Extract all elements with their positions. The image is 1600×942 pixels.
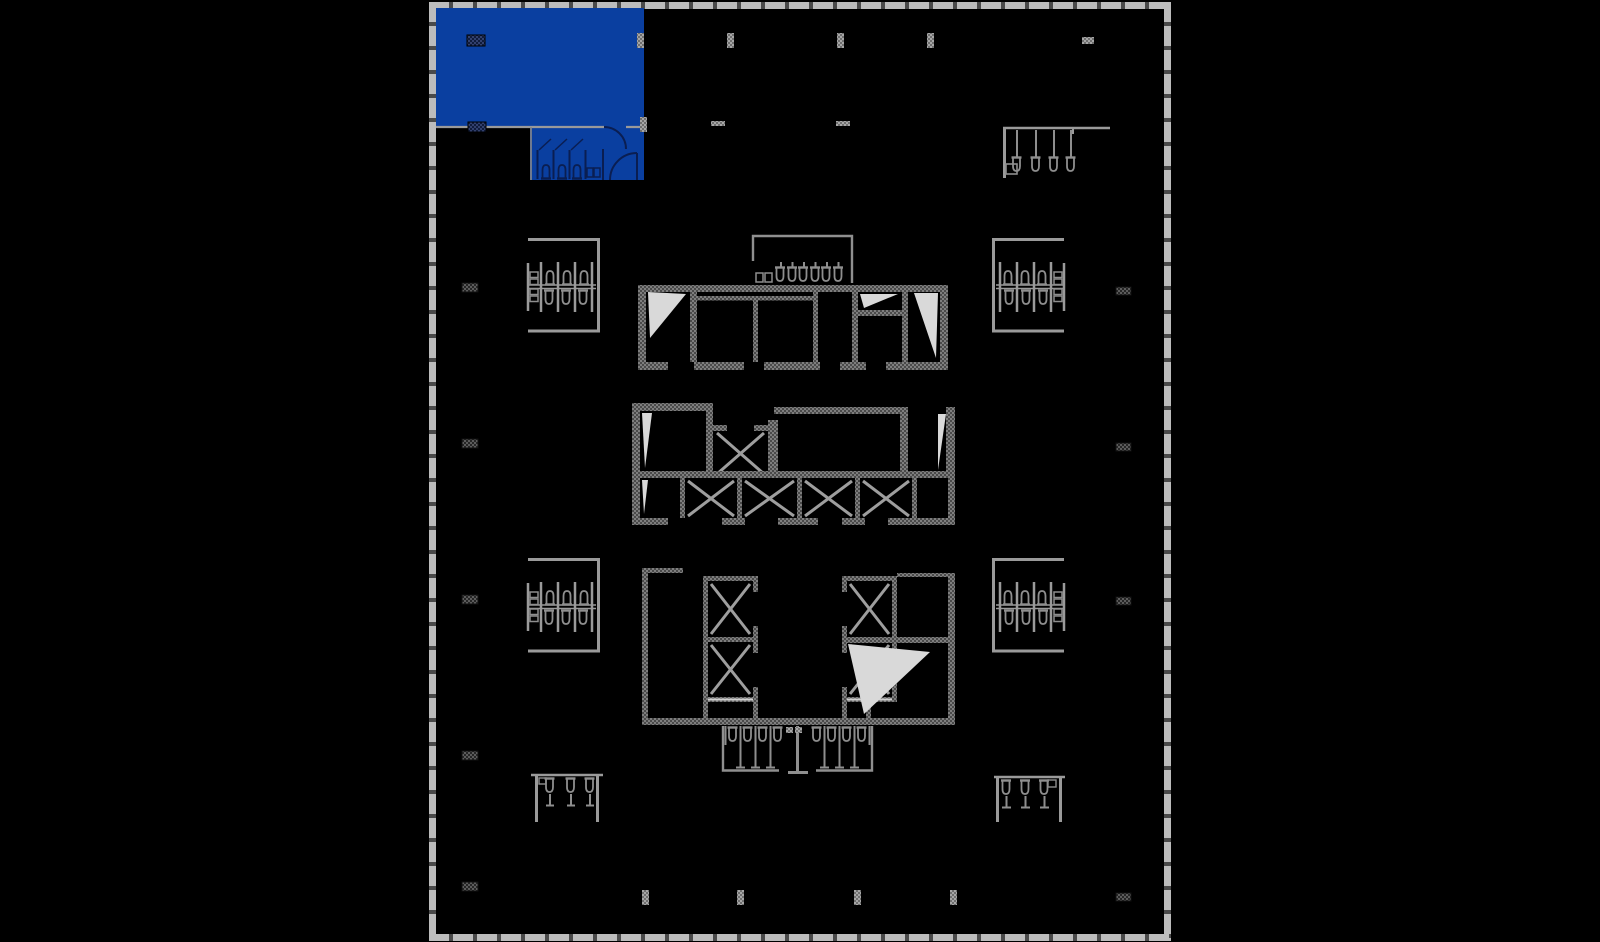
column-marker	[1082, 37, 1094, 44]
column-marker	[462, 439, 478, 448]
column-marker	[836, 121, 850, 126]
column-marker	[642, 890, 649, 905]
column-marker	[462, 882, 478, 891]
column-marker	[1116, 597, 1131, 605]
column-marker	[1116, 287, 1131, 295]
sink-fixture-icon	[795, 727, 802, 733]
column-marker	[1116, 893, 1131, 901]
column-marker	[737, 890, 744, 905]
column-marker	[468, 122, 486, 132]
floor-plan-drawing	[0, 0, 1600, 942]
column-marker	[1116, 443, 1131, 451]
column-marker	[467, 35, 485, 46]
column-marker	[727, 33, 734, 48]
column-marker	[462, 751, 478, 760]
column-marker	[927, 33, 934, 48]
sink-fixture-icon	[786, 727, 793, 733]
column-marker	[462, 595, 478, 604]
column-marker	[837, 33, 844, 48]
column-marker	[640, 117, 647, 132]
upper-core-block	[638, 285, 948, 370]
column-marker	[711, 121, 725, 126]
column-marker	[854, 890, 861, 905]
column-marker	[637, 33, 644, 48]
floor-plan-stage	[0, 0, 1600, 942]
column-marker	[950, 890, 957, 905]
column-marker	[462, 283, 478, 292]
